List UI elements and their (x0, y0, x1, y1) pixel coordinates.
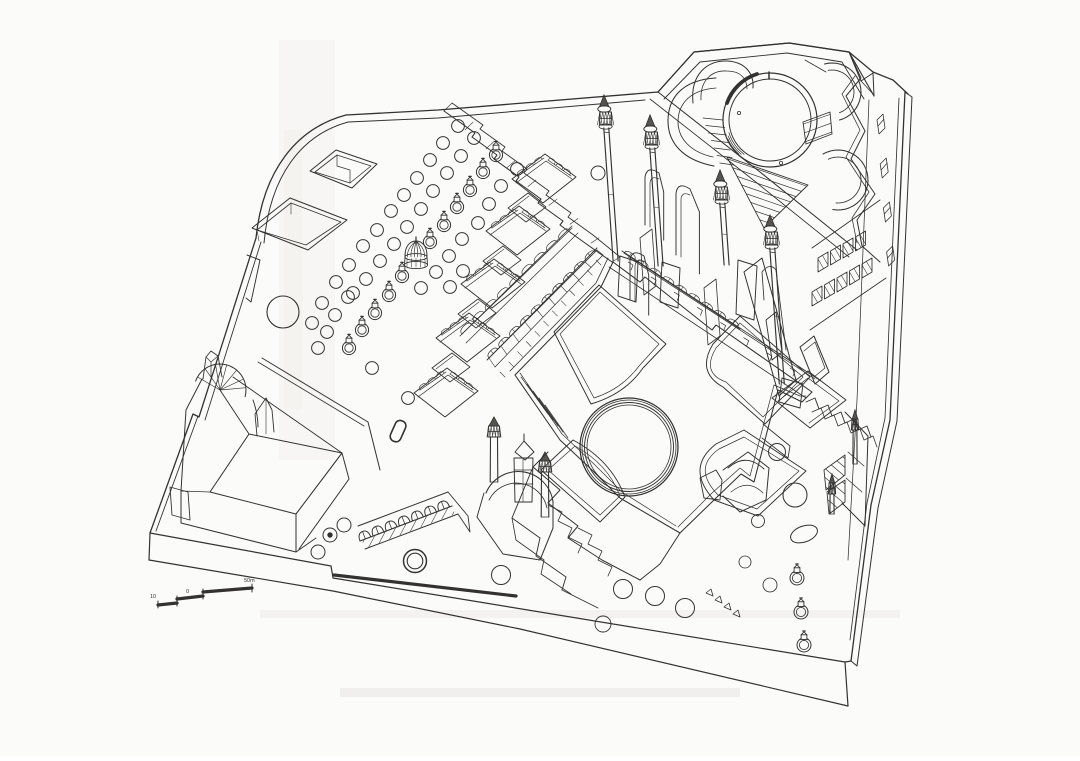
svg-text:10: 10 (150, 594, 156, 600)
svg-text:50m: 50m (244, 578, 255, 584)
svg-text:0: 0 (186, 589, 189, 595)
